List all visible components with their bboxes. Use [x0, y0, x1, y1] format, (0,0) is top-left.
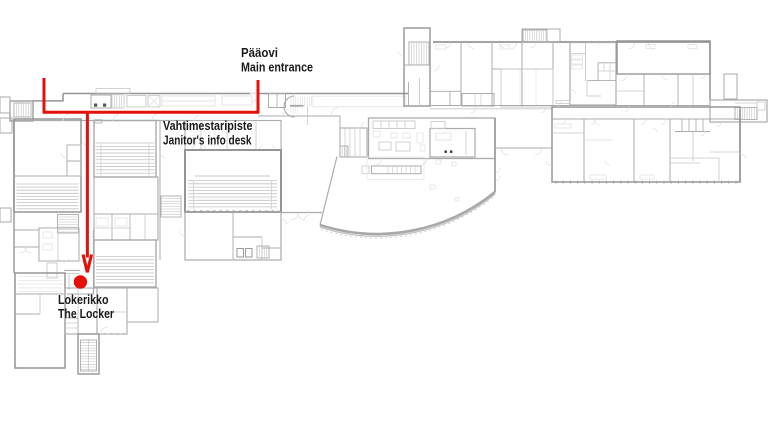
svg-text:Main entrance: Main entrance: [241, 60, 313, 75]
svg-text:Lokerikko: Lokerikko: [58, 292, 109, 307]
svg-text:Vahtimestaripiste: Vahtimestaripiste: [163, 118, 253, 133]
svg-text:Pääovi: Pääovi: [241, 45, 278, 60]
svg-text:The Locker: The Locker: [58, 306, 114, 321]
svg-text:Janitor's info desk: Janitor's info desk: [163, 133, 252, 148]
